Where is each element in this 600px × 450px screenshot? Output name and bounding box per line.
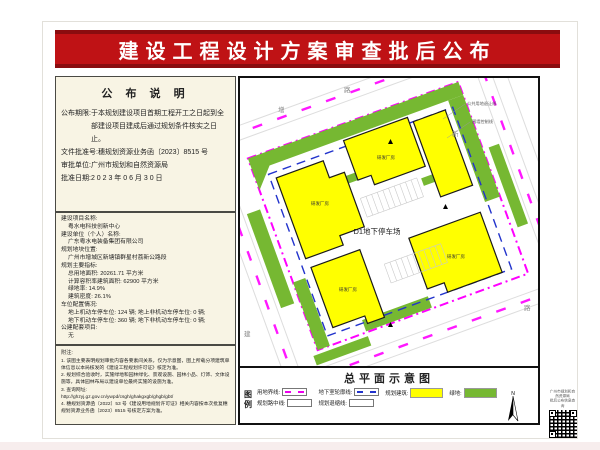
- building-label: 研发厂房: [311, 200, 329, 207]
- legend-item: 规划建筑:: [385, 388, 443, 398]
- field-value: 广州市规划和自然资源局: [91, 160, 230, 173]
- announcement-line: 文件批准号: 穗规划资源业务函〔2023〕8515 号: [61, 147, 230, 160]
- page-title: 建设工程设计方案审查批后公布: [119, 35, 497, 64]
- qr-block: 广州市规划和自然资源局 批后公布信息查询: [547, 388, 578, 438]
- field-value: 于本规划建设项目首期工程开工之日起到全部建设项目建成后通过规划条件核实之日止。: [91, 108, 230, 147]
- legend-item: 地下室轮廓线:: [318, 388, 379, 396]
- field-value: 穗规划资源业务函〔2023〕8515 号: [98, 147, 230, 160]
- legend-item: 绿地:: [449, 388, 496, 398]
- project-location: 广州市增城区新塘镇群星村荔新公路段: [61, 255, 230, 263]
- boundary-line-swatch: [282, 388, 307, 396]
- field-value: 2 0 2 3 年 0 6 月 3 0 日: [91, 173, 230, 186]
- planned-building-swatch: [410, 388, 443, 398]
- legend-column: 绿地:: [449, 388, 496, 398]
- legend-label: 规划退缩线:: [318, 399, 346, 407]
- building-label: 研发厂房: [447, 253, 465, 260]
- legend-label: 规划路中线:: [257, 399, 285, 407]
- qr-finder-icon: [549, 410, 556, 417]
- project-name-label: 建设项目名称:: [61, 216, 230, 224]
- callout-label: 围墙控制线: [472, 118, 494, 125]
- note-item: 3. 查询网址:: [61, 387, 230, 394]
- legend-item: 规划路中线:: [257, 399, 312, 407]
- project-location-label: 规划地块位置:: [61, 247, 230, 255]
- title-banner: 建设工程设计方案审查批后公布: [55, 30, 560, 68]
- field-label: 批准日期:: [61, 173, 91, 186]
- announcement-line: 审批单位: 广州市规划和自然资源局: [61, 160, 230, 173]
- field-label: 公布期限:: [61, 108, 91, 147]
- public-facility-label: 公建配套项目:: [61, 325, 230, 333]
- legend-panel: 总平面示意图 图例 用地界线: 规划路中线: 地下室轮廓线: 规: [240, 366, 538, 423]
- announcement-title: 公 布 说 明: [61, 85, 230, 101]
- indicator-item: 绿地率: 14.9%: [61, 286, 230, 294]
- site-plan-frame: 公共用地退让线 围墙控制线 研发厂房 研发厂房 研发厂房 研发厂房 D1地下停车…: [238, 76, 540, 425]
- indicator-item: 总用地面积: 20261.71 平方米: [61, 271, 230, 279]
- road-char: 路: [344, 85, 351, 94]
- road-char: 建: [244, 329, 251, 338]
- query-url: http://ghzyj.gz.gov.cn/ywpd/csgh/ghakgxg…: [61, 394, 230, 401]
- legend-column: 地下室轮廓线: 规划退缩线:: [318, 388, 379, 407]
- road-char: 路: [524, 303, 531, 312]
- legend-title: 总平面示意图: [240, 370, 538, 386]
- qr-code: [549, 410, 577, 438]
- notes-title: 附注:: [61, 350, 230, 358]
- indicators-label: 规划主要指标:: [61, 263, 230, 271]
- basement-outline-swatch: [354, 388, 379, 396]
- legend-column: 用地界线: 规划路中线:: [257, 388, 312, 407]
- project-name: 粤水电科技创新中心: [61, 224, 230, 232]
- building-label: 研发厂房: [339, 286, 357, 293]
- road-char: 增: [278, 105, 285, 114]
- legend-label: 用地界线:: [257, 388, 280, 396]
- indicator-item: 建筑密度: 26.1%: [61, 294, 230, 302]
- legend-label: 地下室轮廓线:: [318, 388, 352, 396]
- note-item: 2. 规划综合验收时，实施绿地和园林绿化、景观设施、园林小品、灯饰、文体设施等，…: [61, 372, 230, 386]
- legend-item: 规划退缩线:: [318, 399, 379, 407]
- road-centerline-swatch: [287, 399, 312, 407]
- qr-finder-icon: [570, 410, 577, 417]
- scan-edge-strip: [0, 442, 600, 450]
- qr-caption-line2: 批后公布信息查询: [549, 398, 577, 407]
- legend-label: 规划建筑:: [385, 389, 408, 397]
- site-plan-svg: 公共用地退让线 围墙控制线 研发厂房 研发厂房 研发厂房 研发厂房 D1地下停车…: [240, 78, 538, 366]
- north-arrow-icon: N: [505, 389, 521, 423]
- road-char: 新: [452, 129, 459, 138]
- field-label: 文件批准号:: [61, 147, 98, 160]
- setback-line-swatch: [349, 399, 374, 407]
- qr-finder-icon: [549, 431, 556, 438]
- announcement-line: 公布期限: 于本规划建设项目首期工程开工之日起到全部建设项目建成后通过规划条件核…: [61, 108, 230, 147]
- green-space-swatch: [464, 388, 497, 398]
- notes-box: 附注: 1. 该图主要表明规划审批内容各要素间关系，仅为示意图，图上所载分项建筑…: [55, 345, 236, 425]
- public-facility-value: 无: [61, 333, 230, 341]
- building-label: 研发厂房: [377, 154, 395, 161]
- parking-item: 地上机动车停车位: 124 辆; 地上非机动车停车位: 0 辆;: [61, 310, 230, 318]
- underground-parking-label: D1地下停车场: [353, 226, 401, 236]
- legend-caption: 图例: [244, 390, 254, 409]
- parking-label: 车位配置情况:: [61, 302, 230, 310]
- qr-caption-line1: 广州市规划和自然资源局: [549, 389, 577, 398]
- field-label: 审批单位:: [61, 160, 91, 173]
- legend-row: 图例 用地界线: 规划路中线: 地下室轮廓线: 规划退缩线:: [244, 388, 536, 423]
- legend-label: 绿地:: [449, 389, 461, 397]
- legend-item: 用地界线:: [257, 388, 312, 396]
- callout-label: 公共用地退让线: [467, 100, 497, 107]
- announcement-box: 公 布 说 明 公布期限: 于本规划建设项目首期工程开工之日起到全部建设项目建成…: [55, 76, 236, 212]
- note-item: 1. 该图主要表明规划审批内容各要素间关系，仅为示意图，图上所载分项建筑单体信息…: [61, 358, 230, 372]
- note-item: 4. 穗规划资源函〔2022〕53 号《建设用地规划许可证》相关内容按本次批复穗…: [61, 401, 230, 415]
- site-plan-map: 公共用地退让线 围墙控制线 研发厂房 研发厂房 研发厂房 研发厂房 D1地下停车…: [240, 78, 538, 366]
- announcement-line: 批准日期: 2 0 2 3 年 0 6 月 3 0 日: [61, 173, 230, 186]
- project-info-box: 建设项目名称: 粤水电科技创新中心 建设单位（个人）名称: 广东粤水电装备集团有…: [55, 212, 236, 345]
- legend-column: 规划建筑:: [385, 388, 443, 398]
